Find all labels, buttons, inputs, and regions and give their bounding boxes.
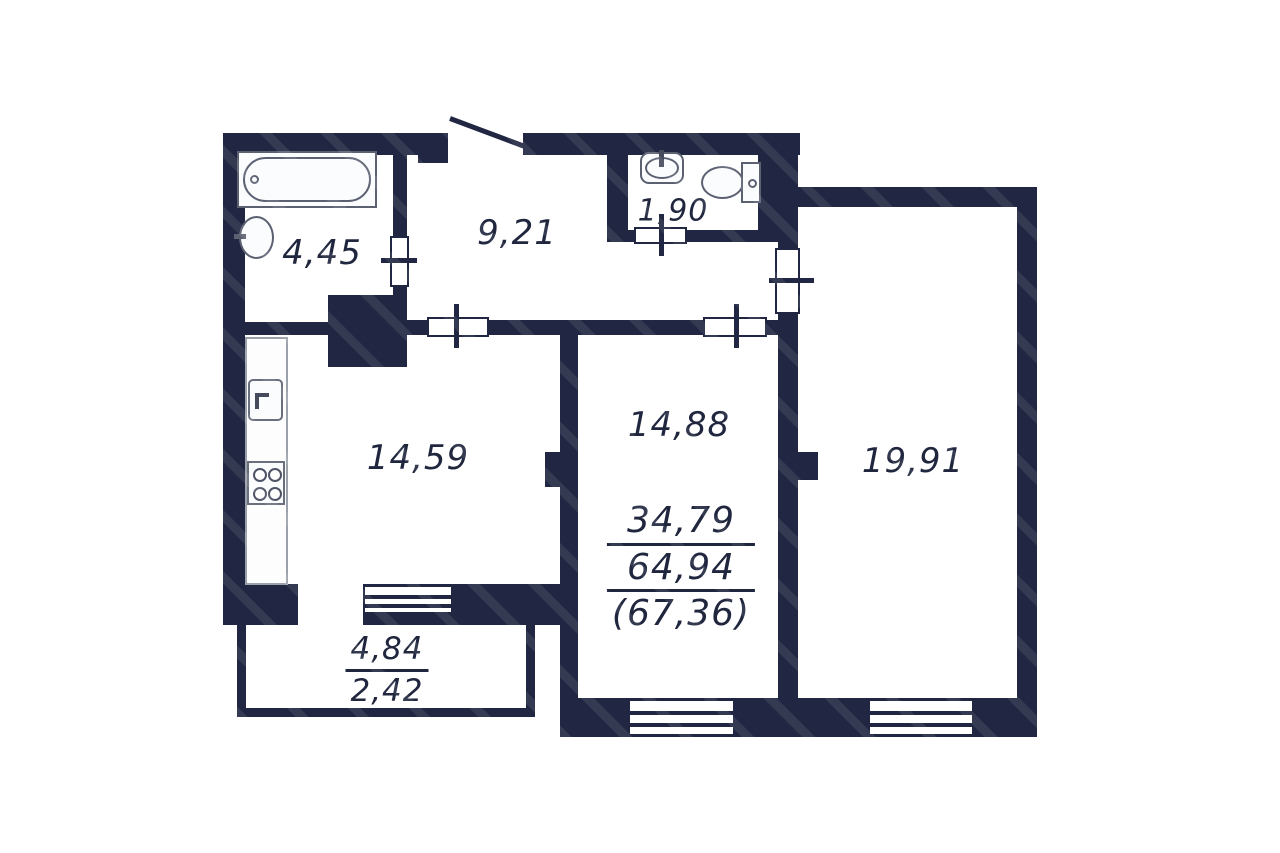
- balcony-wall-right: [526, 621, 535, 717]
- wall-corner-notch: [1007, 207, 1017, 224]
- bathroom-area-label: 4,45: [282, 233, 362, 273]
- apartment-area-value: 64,94: [607, 550, 755, 593]
- middle-room-door-tick: [734, 304, 739, 348]
- duct-shaft: [328, 295, 407, 367]
- wall-bathroom-bottom: [223, 322, 328, 335]
- floor-plan: 4,45 9,21 1,90 14,59 14,88 19,91 34,79 6…: [0, 0, 1280, 853]
- pilaster-kitchen: [545, 452, 560, 487]
- wall-wc-right: [758, 155, 778, 242]
- total-area-value: (67,36): [607, 596, 755, 636]
- balcony-area-coefficient: 2,42: [345, 676, 428, 711]
- wall-wc-bottom-a: [607, 230, 637, 242]
- right-room-area-label: 19,91: [862, 441, 964, 481]
- bathroom-door-tick: [381, 258, 417, 263]
- wall-entry-pier: [418, 155, 448, 163]
- middle-room-area-label: 14,88: [628, 405, 730, 445]
- wall-bottom-c: [972, 698, 1037, 737]
- balcony-area-labels: 4,84 2,42: [345, 634, 428, 710]
- kitchen-area-label: 14,59: [367, 438, 469, 478]
- living-area-value: 34,79: [607, 503, 755, 546]
- toilet-tank-icon: [741, 162, 761, 203]
- area-summary: 34,79 64,94 (67,36): [607, 503, 755, 636]
- stove-icon: [247, 461, 285, 505]
- wc-sink-tap-icon: [659, 150, 664, 167]
- balcony-door-opening: [298, 584, 363, 625]
- wall-vertical-upper: [778, 133, 798, 250]
- right-room-door-tick: [769, 278, 814, 283]
- bathtub-icon: [237, 151, 377, 208]
- wall-hall-bottom-b: [488, 320, 705, 335]
- balcony-area-full: 4,84: [345, 634, 428, 672]
- wc-area-label: 1,90: [638, 194, 709, 229]
- wall-bottom-b: [733, 698, 870, 737]
- entrance-door-leaf: [449, 116, 527, 149]
- wall-vertical-lower: [778, 313, 798, 698]
- hallway-area-label: 9,21: [477, 213, 557, 253]
- wall-rightroom-top: [798, 187, 1017, 207]
- wall-wc-left: [607, 155, 628, 242]
- wall-bottom-a: [560, 698, 630, 737]
- wall-bathroom-right-upper: [393, 155, 407, 237]
- balcony-wall-left: [237, 620, 246, 717]
- bathroom-sink-tap-icon: [234, 234, 246, 239]
- kitchen-window: [363, 584, 453, 615]
- wall-hall-bottom-a: [407, 320, 427, 335]
- kitchen-door-tick: [454, 304, 459, 348]
- pilaster-right-room: [798, 452, 818, 480]
- wall-right: [1017, 187, 1037, 737]
- kitchen-sink-icon: [248, 379, 283, 421]
- middle-room-window: [630, 698, 733, 737]
- right-room-window: [870, 698, 972, 737]
- wall-kitchen-middle: [560, 320, 578, 698]
